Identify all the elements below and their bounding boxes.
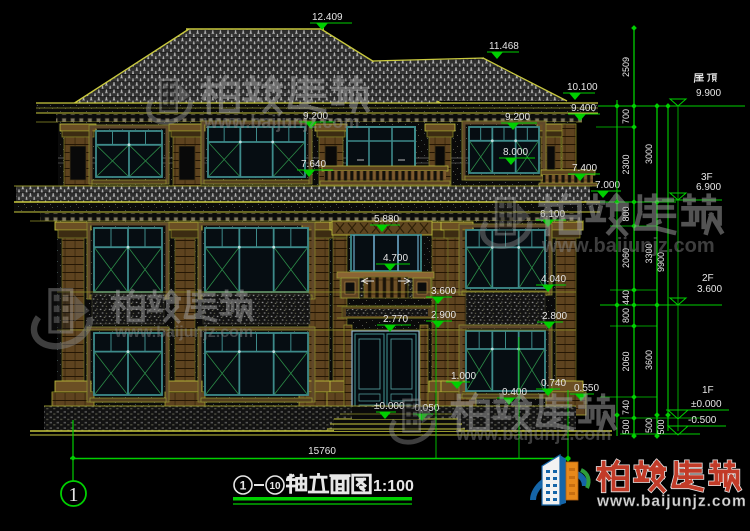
svg-text:4.040: 4.040 xyxy=(541,274,566,285)
svg-text:7.640: 7.640 xyxy=(301,159,326,170)
svg-text:±0.000: ±0.000 xyxy=(374,401,405,412)
svg-text:±0.000: ±0.000 xyxy=(691,399,722,410)
svg-text:www.baijunjz.com: www.baijunjz.com xyxy=(455,424,611,444)
svg-text:11.468: 11.468 xyxy=(489,41,519,52)
svg-text:1: 1 xyxy=(240,479,247,493)
svg-text:12.409: 12.409 xyxy=(312,12,343,23)
svg-text:9.400: 9.400 xyxy=(571,103,596,114)
svg-text:3.600: 3.600 xyxy=(697,284,722,295)
svg-text:10: 10 xyxy=(269,481,281,492)
svg-text:740: 740 xyxy=(621,400,631,415)
svg-text:700: 700 xyxy=(621,109,631,124)
svg-text:2.800: 2.800 xyxy=(542,311,567,322)
svg-text:6.900: 6.900 xyxy=(696,182,721,193)
svg-text:3.600: 3.600 xyxy=(431,286,456,297)
svg-text:0.740: 0.740 xyxy=(541,378,566,389)
svg-text:1F: 1F xyxy=(702,385,714,396)
svg-text:10.100: 10.100 xyxy=(567,82,598,93)
svg-text:9.200: 9.200 xyxy=(505,112,530,123)
svg-text:2F: 2F xyxy=(702,273,714,284)
svg-text:1.000: 1.000 xyxy=(451,371,476,382)
svg-text:500: 500 xyxy=(656,419,666,434)
svg-text:www.baijunjz.com: www.baijunjz.com xyxy=(114,324,253,341)
svg-text:2060: 2060 xyxy=(621,351,631,371)
svg-text:4.700: 4.700 xyxy=(383,253,408,264)
svg-text:1:100: 1:100 xyxy=(373,478,414,495)
svg-text:8.000: 8.000 xyxy=(503,147,528,158)
svg-text:www.baijunjz.com: www.baijunjz.com xyxy=(203,112,359,132)
svg-text:3000: 3000 xyxy=(644,144,654,164)
svg-text:0.550: 0.550 xyxy=(574,383,599,394)
svg-text:15760: 15760 xyxy=(308,446,336,457)
svg-text:2.900: 2.900 xyxy=(431,310,456,321)
svg-text:2.770: 2.770 xyxy=(383,314,408,325)
svg-text:www.baijunjz.com: www.baijunjz.com xyxy=(541,235,715,257)
svg-text:1: 1 xyxy=(69,484,79,506)
svg-text:-0.500: -0.500 xyxy=(688,415,717,426)
svg-text:2300: 2300 xyxy=(621,154,631,174)
svg-text:3600: 3600 xyxy=(644,350,654,370)
svg-text:9.900: 9.900 xyxy=(696,88,721,99)
svg-text:5.880: 5.880 xyxy=(374,214,399,225)
svg-text:500: 500 xyxy=(621,419,631,434)
svg-text:800: 800 xyxy=(621,308,631,323)
svg-text:2509: 2509 xyxy=(621,57,631,77)
svg-text:www.baijunjz.com: www.baijunjz.com xyxy=(596,493,747,510)
svg-text:440: 440 xyxy=(621,290,631,305)
svg-text:7.400: 7.400 xyxy=(572,163,597,174)
svg-text:500: 500 xyxy=(644,418,654,433)
